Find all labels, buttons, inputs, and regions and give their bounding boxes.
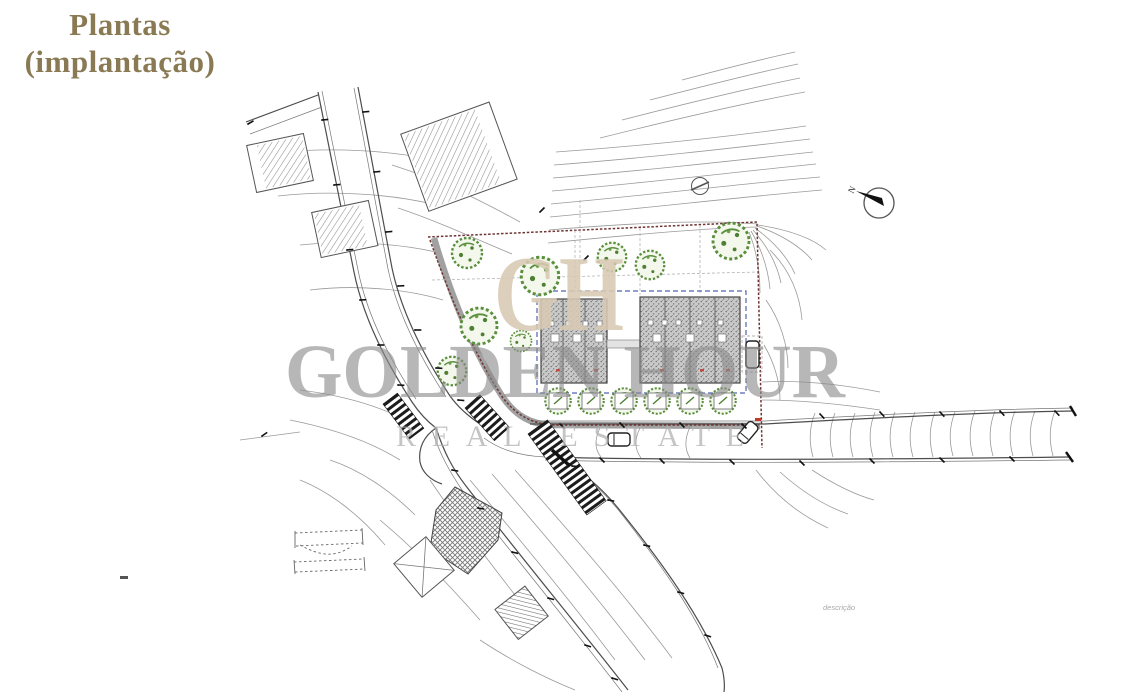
tree: [713, 223, 749, 259]
building-hatched-s: [495, 586, 548, 639]
caption-descricao: descrição: [823, 603, 855, 612]
annex-structures: [294, 528, 365, 574]
site-plan-drawing: N descrição GH GOLDEN HOUR REAL ESTATE: [0, 0, 1129, 692]
building-hatched-w: [312, 200, 378, 257]
tree: [452, 238, 482, 268]
north-arrow: N: [846, 184, 894, 218]
tree: [636, 251, 665, 280]
stray-mark: [120, 576, 128, 579]
north-label: N: [846, 184, 858, 195]
north-needle: [856, 191, 884, 206]
watermark-primary: GOLDEN HOUR: [285, 330, 846, 414]
building-hatched-nw: [247, 133, 314, 192]
watermark-secondary: REAL ESTATE: [396, 420, 744, 453]
building-hatched-n: [401, 102, 517, 211]
watermark: GH GOLDEN HOUR REAL ESTATE: [285, 235, 846, 453]
